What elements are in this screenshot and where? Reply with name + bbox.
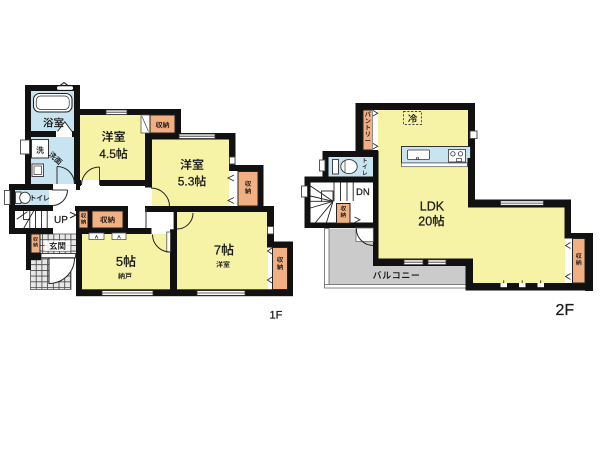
- svg-text:4.5: 4.5: [99, 147, 116, 161]
- svg-text:5.3: 5.3: [178, 175, 195, 189]
- svg-text:1F: 1F: [270, 309, 283, 321]
- svg-text:5: 5: [116, 254, 123, 269]
- svg-text:7: 7: [214, 243, 221, 258]
- svg-text:LDK: LDK: [420, 199, 445, 213]
- svg-text:UP: UP: [54, 215, 68, 226]
- svg-text:2F: 2F: [556, 302, 575, 319]
- svg-text:DN: DN: [356, 187, 370, 198]
- svg-text:20: 20: [418, 214, 432, 228]
